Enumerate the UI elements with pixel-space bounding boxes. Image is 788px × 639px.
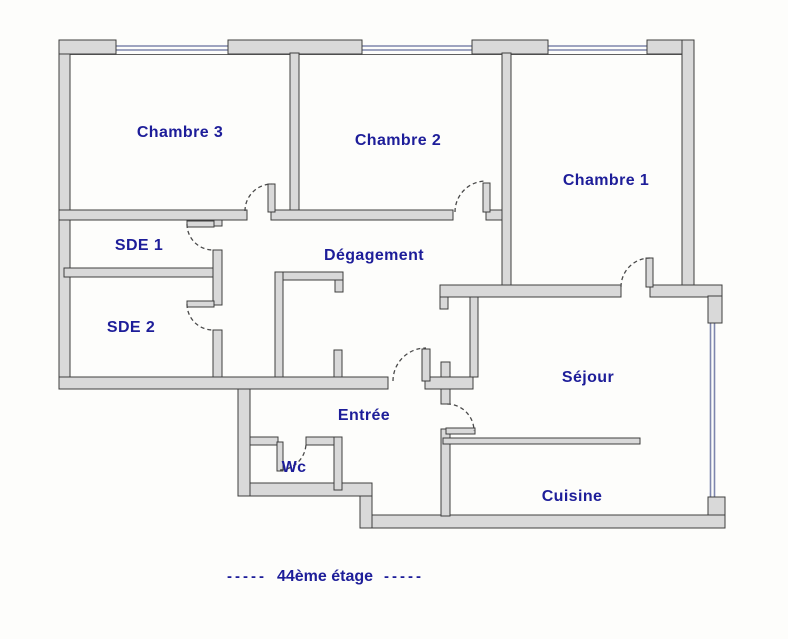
wall-sde-corridor-low [213, 330, 222, 377]
wall-wc-right [334, 437, 342, 490]
door-swing-arc [455, 181, 486, 212]
room-label-entree: Entrée [338, 407, 390, 424]
door-swing-arc [393, 348, 426, 381]
wall-sejour-left [470, 297, 478, 377]
caption-dashes-left: ----- [227, 568, 267, 585]
wall-cross-stub-lower [441, 389, 450, 404]
wall-closet-top [275, 272, 343, 280]
door-chambre-2 [455, 181, 490, 212]
room-label-cuisine: Cuisine [542, 488, 603, 505]
door-sde-1 [187, 221, 214, 250]
room-label-sde-1: SDE 1 [115, 237, 163, 254]
room-labels-group: Chambre 3 Chambre 2 Chambre 1 SDE 1 SDE … [107, 124, 649, 505]
door-swing-arc [187, 304, 213, 330]
wall-chambre3-chambre2-divider [290, 53, 299, 210]
door-entree [393, 348, 430, 381]
room-label-sejour: Séjour [562, 369, 614, 386]
wall-mid-band-right [425, 377, 473, 389]
wall-top-pillar-c [472, 40, 548, 54]
door-sde-2 [187, 301, 214, 330]
floor-plan: Chambre 3 Chambre 2 Chambre 1 SDE 1 SDE … [0, 0, 788, 639]
door-leaf [187, 301, 214, 307]
door-chambre-1 [621, 258, 653, 287]
wall-wc-top-left [250, 437, 278, 445]
wall-kitchen-counter-divider [443, 438, 640, 444]
door-swing-arc [187, 224, 213, 250]
wall-sde-corridor-mid [213, 250, 222, 305]
walls-group [59, 40, 725, 528]
caption-dashes-right: ----- [384, 568, 424, 585]
wall-outer-bottom-entree [238, 483, 372, 496]
room-label-wc: Wc [282, 459, 307, 476]
door-leaf [268, 184, 275, 212]
wall-corridor-top-left [59, 210, 247, 220]
room-label-degagement: Dégagement [324, 247, 424, 264]
door-swing-arc [447, 404, 474, 431]
door-leaf [187, 221, 214, 227]
door-leaf [646, 258, 653, 287]
door-sejour [446, 404, 475, 434]
wall-mid-band-left [59, 377, 388, 389]
room-label-sde-2: SDE 2 [107, 319, 155, 336]
wall-top-pillar-b [228, 40, 362, 54]
wall-right-step-block [708, 296, 722, 323]
wall-top-pillar-a [59, 40, 116, 54]
door-chambre-3 [245, 184, 275, 212]
door-leaf [422, 349, 430, 381]
floor-caption: ----- 44ème étage ----- [227, 568, 424, 585]
room-label-chambre-3: Chambre 3 [137, 124, 223, 141]
wall-closet-left [275, 272, 283, 377]
wall-chambre1-bottom [440, 285, 621, 297]
room-label-chambre-2: Chambre 2 [355, 132, 441, 149]
wall-outer-right [682, 40, 694, 290]
doors-group [187, 181, 653, 471]
caption-title: 44ème étage [277, 568, 373, 585]
wall-corridor-top-mid [271, 210, 453, 220]
wall-right-step-band [650, 285, 722, 297]
wall-closet-stub-top [335, 280, 343, 292]
wall-closet-stub-bottom [334, 350, 342, 377]
door-leaf [446, 428, 475, 434]
wall-sejour-corner-stub [440, 297, 448, 309]
wall-entree-left [238, 377, 250, 496]
wall-sde1-sde2-divider [64, 268, 222, 277]
wall-chambre2-chambre1-divider [502, 53, 511, 297]
wall-cross-stub-upper [441, 362, 450, 377]
door-leaf [483, 183, 490, 212]
wall-outer-bottom-cuisine [360, 515, 725, 528]
room-label-chambre-1: Chambre 1 [563, 172, 649, 189]
